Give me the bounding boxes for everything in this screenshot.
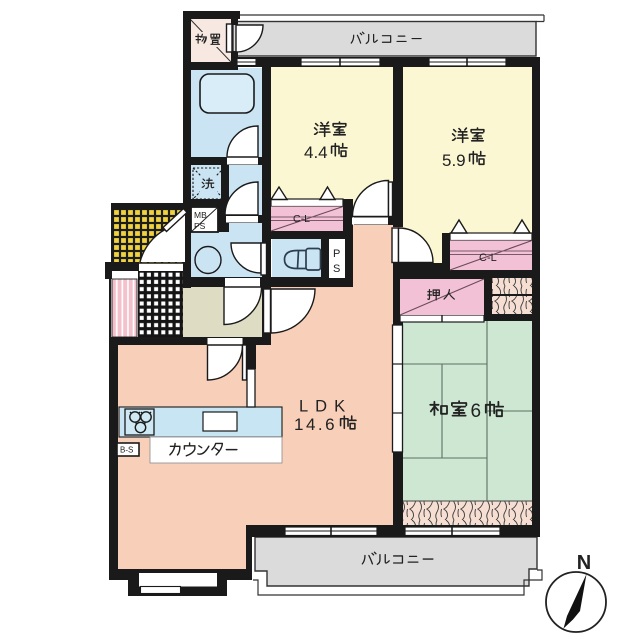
svg-text:14.6: 14.6 [294, 415, 337, 434]
svg-text:B-S: B-S [120, 446, 133, 455]
svg-text:C-L: C-L [479, 252, 497, 264]
svg-text:6: 6 [471, 401, 482, 422]
svg-text:N: N [577, 552, 591, 574]
svg-text:PS: PS [194, 221, 206, 231]
svg-text:MB: MB [194, 210, 207, 220]
svg-text:P: P [333, 248, 340, 260]
svg-text:C-L: C-L [293, 213, 310, 225]
svg-text:5.9: 5.9 [442, 151, 466, 170]
svg-text:S: S [333, 263, 340, 275]
svg-text:4.4: 4.4 [304, 143, 328, 162]
svg-text:LDK: LDK [299, 398, 352, 416]
